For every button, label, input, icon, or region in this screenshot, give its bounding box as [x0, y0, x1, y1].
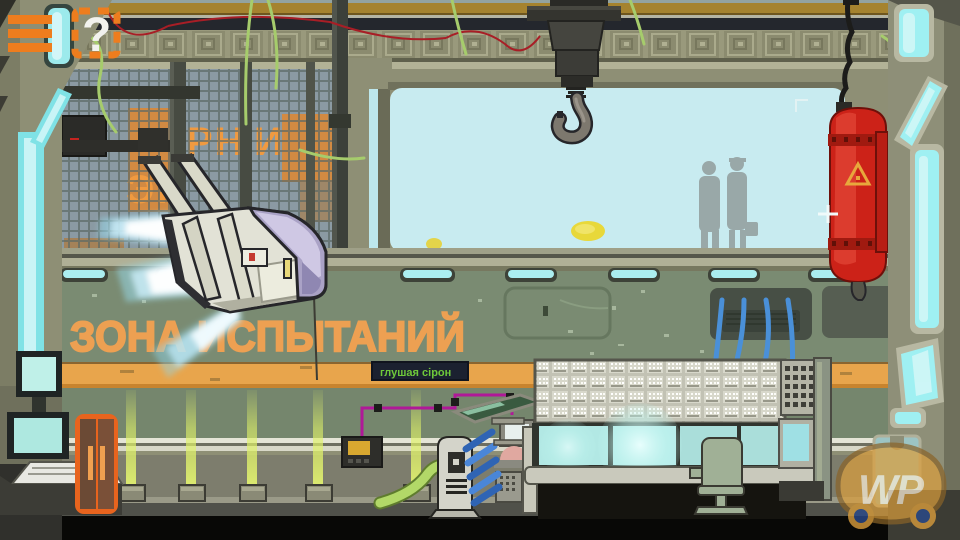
svg-text:ЗОНА ИСПЫТАНИЙ: ЗОНА ИСПЫТАНИЙ [70, 312, 465, 361]
svg-text:глушая сірон: глушая сірон [380, 367, 451, 379]
svg-text:P: P [896, 466, 925, 513]
svg-text:W: W [858, 466, 901, 513]
svg-text:?: ? [82, 9, 111, 62]
